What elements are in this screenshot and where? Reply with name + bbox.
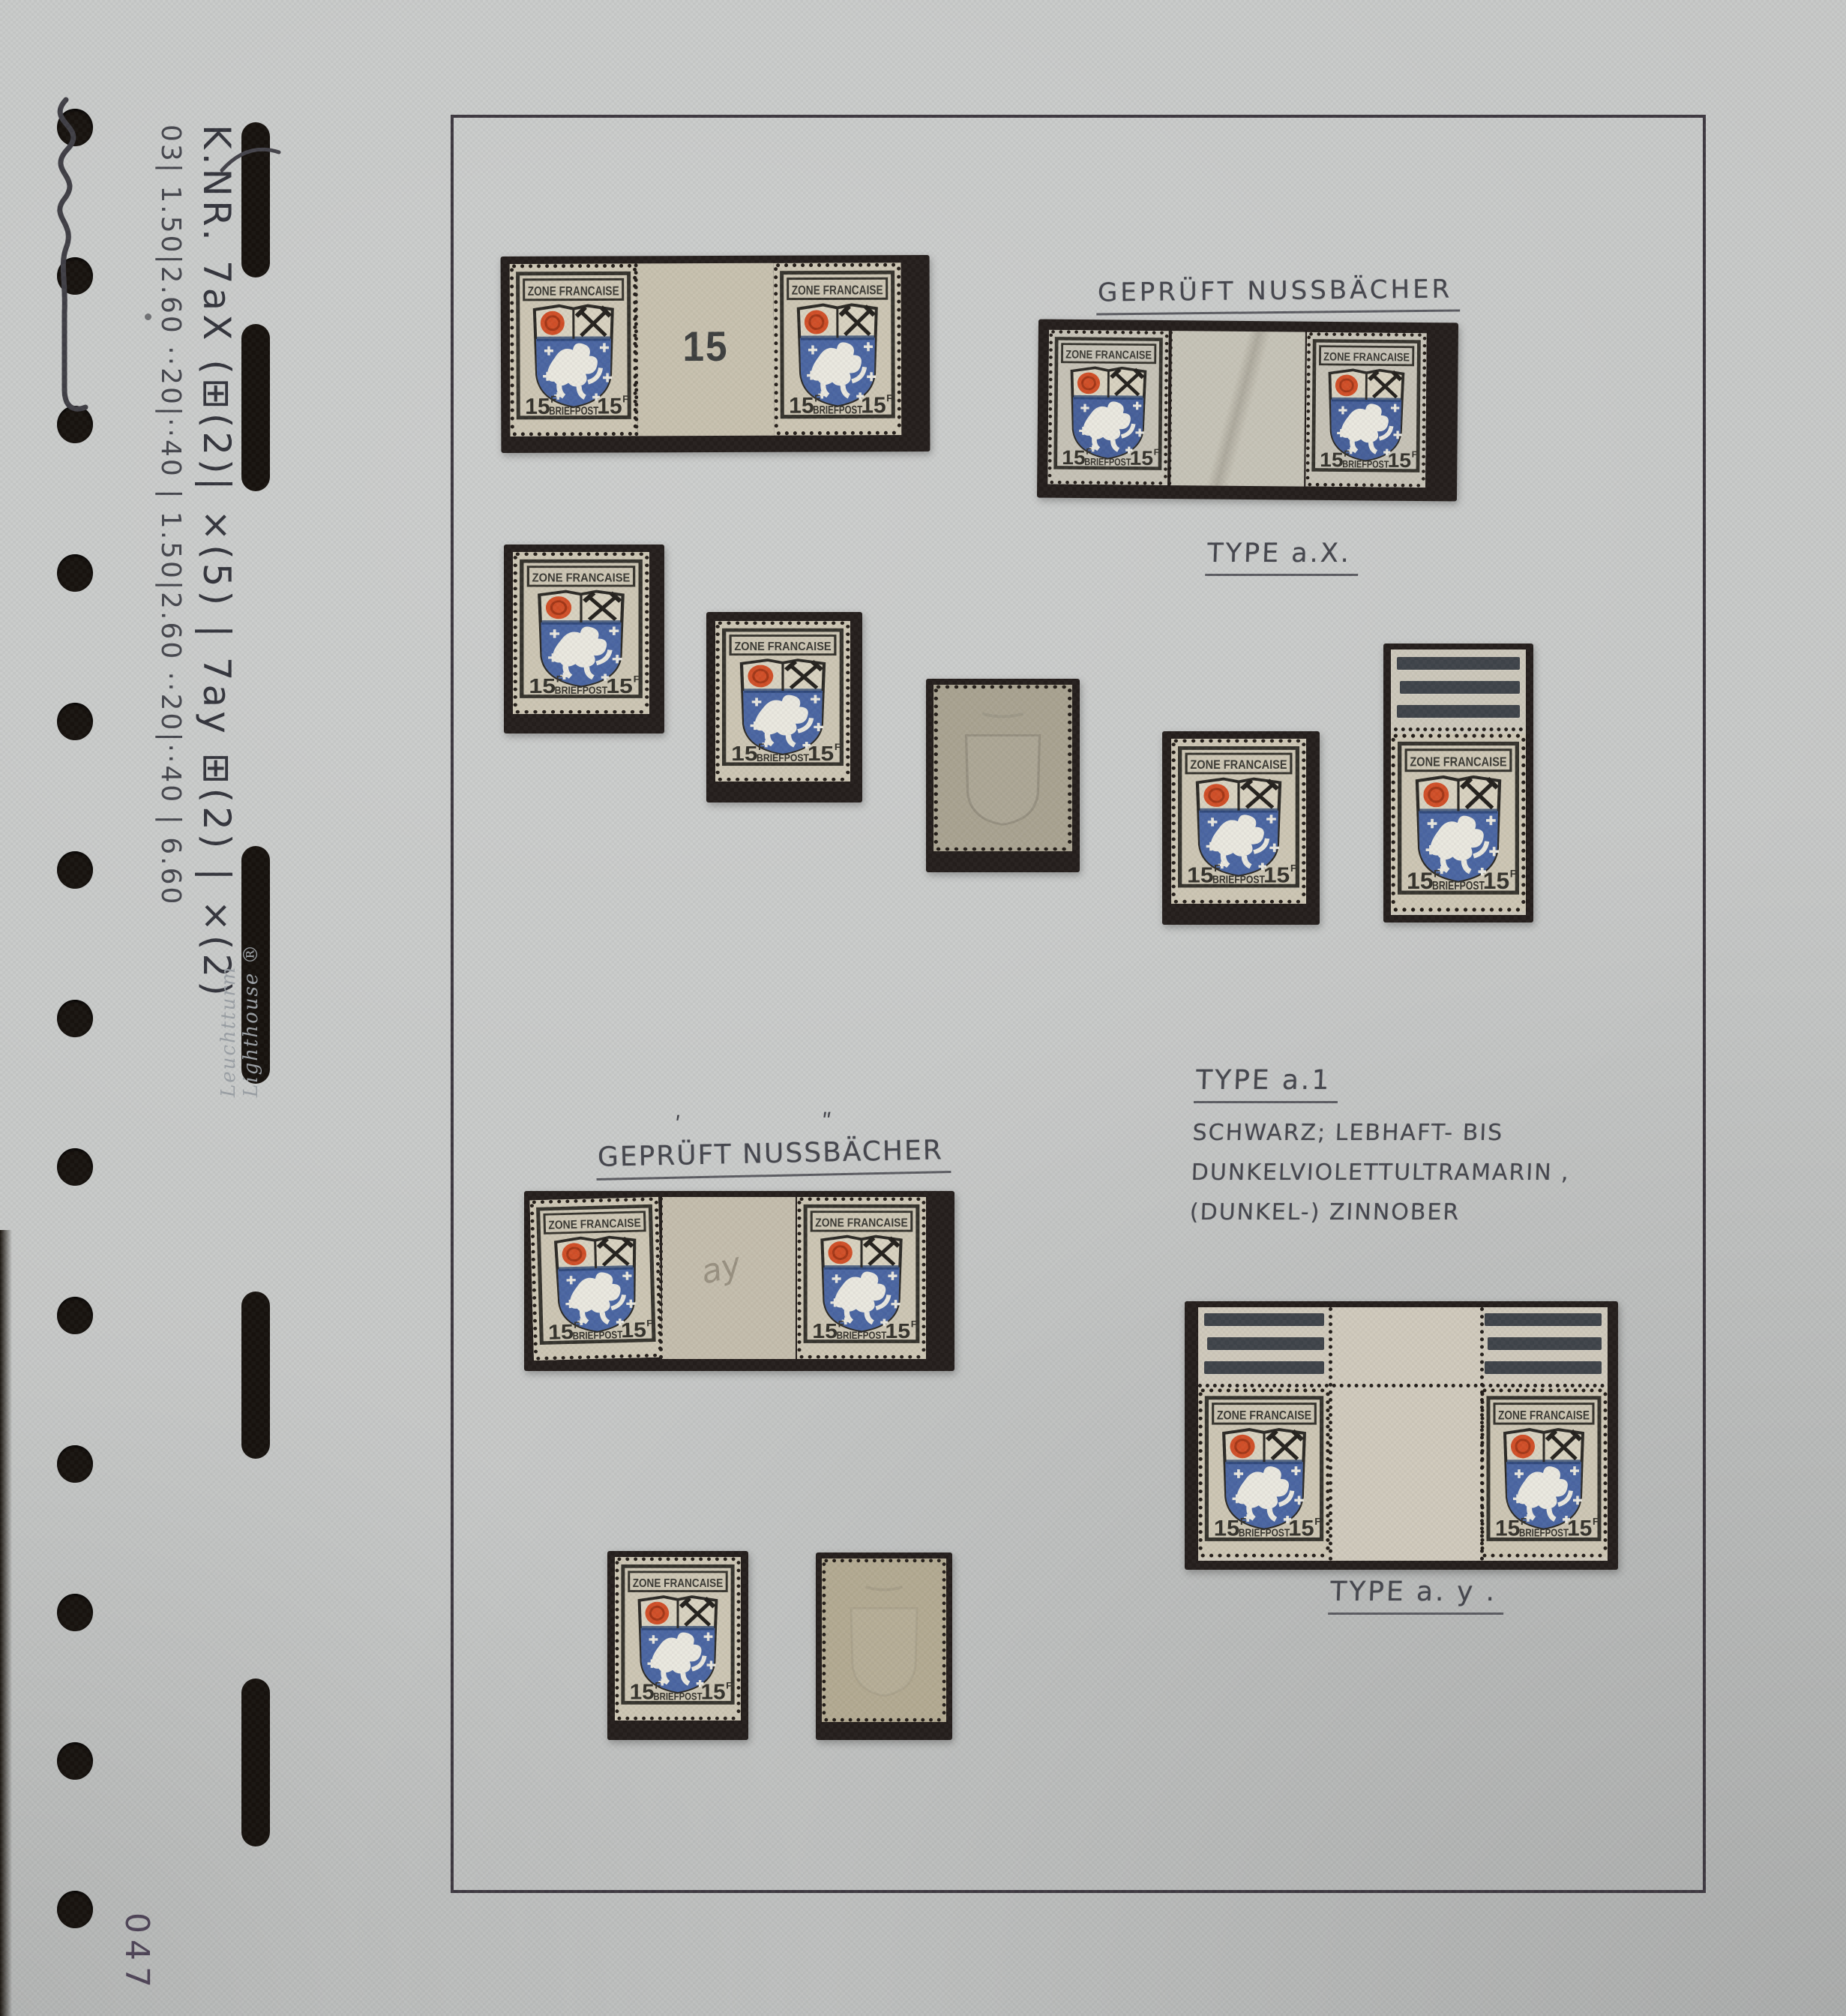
mount-cross-gutter-block — [1185, 1301, 1618, 1570]
mount-gutter-pair-15: 15 — [501, 255, 930, 453]
handwriting-type-ay: TYPE a. y . — [1328, 1576, 1505, 1615]
punch-hole — [57, 1297, 93, 1334]
handwriting-gepruft-lower: GEPRÜFT NUSSBÄCHER — [596, 1135, 951, 1180]
perforation-column — [634, 263, 639, 436]
stamp-face — [615, 1557, 741, 1720]
handwriting-type-a1-line2: DUNKELVIOLETTULTRAMARIN , — [1191, 1159, 1570, 1186]
page-number-vertical: 047 — [118, 1912, 156, 1993]
mount-gutter-pair-blank-2: ay — [524, 1191, 954, 1371]
punch-hole — [57, 1742, 93, 1780]
binder-slot-mark — [241, 1291, 270, 1459]
punch-hole — [57, 1594, 93, 1631]
stamp-face — [1171, 739, 1306, 904]
margin-bar — [1204, 1313, 1324, 1326]
stamp-face — [774, 262, 902, 436]
album-brand-vertical: Leuchtturm Lighthouse ® — [217, 842, 262, 1097]
stamp-face — [1480, 1388, 1608, 1558]
margin-bar — [1488, 1337, 1602, 1350]
stamp-face — [1047, 330, 1169, 485]
punch-hole — [57, 1445, 93, 1483]
mount-stamp-with-margin — [1383, 643, 1533, 922]
handwriting-type-ax: TYPE a.X. — [1205, 538, 1359, 576]
mount-single-stamp — [607, 1551, 748, 1740]
binder-slot-mark — [241, 324, 270, 491]
stamp-face — [510, 263, 638, 436]
margin-bar — [1485, 1313, 1602, 1326]
punch-hole — [57, 1148, 93, 1186]
gutter-tab: 15 — [637, 263, 775, 436]
margin-bar — [1204, 1361, 1324, 1374]
stamp-back — [822, 1558, 946, 1722]
perforation-column — [659, 1197, 663, 1359]
margin-bar — [1207, 1337, 1324, 1350]
margin-tab-unit — [1480, 1307, 1608, 1561]
stamp-face — [1305, 332, 1427, 487]
stamp-face — [797, 1197, 926, 1359]
mount-stamp-back — [816, 1552, 952, 1740]
handwriting-gepruft-top: GEPRÜFT NUSSBÄCHER — [1096, 274, 1461, 315]
handwriting-diacritic-mark: ʹ — [675, 1113, 681, 1139]
handwriting-type-a1-block: TYPE a.1 SCHWARZ; LEBHAFT- BIS DUNKELVIO… — [1189, 1065, 1573, 1225]
paper-crease — [1170, 331, 1305, 487]
stamp-face — [1391, 733, 1526, 912]
stamp-face — [1198, 1388, 1330, 1558]
gutter-pencil-note: ay — [697, 1245, 745, 1291]
album-page-photo: ZONE FRANCAISE 15 F BRIEFPOST 15 F — [0, 0, 1846, 2016]
mount-gutter-pair-blank — [1037, 319, 1458, 502]
margin-bar — [1485, 1361, 1602, 1374]
mount-single-stamp — [706, 612, 862, 802]
handwriting-type-a1-line3: (DUNKEL-) ZINNOBER — [1189, 1199, 1569, 1225]
gutter-tab — [1170, 331, 1305, 487]
punch-hole — [57, 554, 93, 592]
margin-tab-unit — [1198, 1307, 1330, 1561]
photo-edge-shadow — [0, 1230, 12, 2016]
stamp-face — [513, 552, 649, 714]
stamp-face — [529, 1197, 663, 1360]
punch-hole — [57, 1000, 93, 1037]
margin-bar — [1397, 657, 1520, 670]
perforation-column — [1329, 1307, 1332, 1561]
stamp-face — [715, 621, 850, 781]
pen-squiggle — [30, 71, 127, 446]
handwriting-type-a1-line1: SCHWARZ; LEBHAFT- BIS — [1192, 1120, 1572, 1146]
margin-note-line2: 03| 1.50|2.60 ··20|··40 | 1.50|2.60 ··20… — [155, 124, 186, 1066]
punch-hole — [57, 703, 93, 740]
mount-single-stamp — [1162, 731, 1320, 925]
punch-hole — [57, 851, 93, 889]
mount-stamp-back — [926, 679, 1080, 872]
perforation-column — [1480, 1307, 1484, 1561]
pen-dot — [145, 313, 151, 320]
gutter-tab: ay — [662, 1197, 796, 1359]
perforation-row — [1191, 1384, 1612, 1387]
margin-bar — [1400, 681, 1520, 694]
mount-single-stamp — [504, 544, 664, 733]
perforation-row — [1394, 727, 1523, 731]
handwriting-type-a1-title: TYPE a.1 — [1194, 1065, 1339, 1103]
punch-hole — [57, 1891, 93, 1928]
margin-bar — [1397, 705, 1520, 718]
handwriting-diacritic-mark: ʺ — [822, 1110, 832, 1136]
gutter-tab — [1330, 1307, 1480, 1561]
gutter-number-label: 15 — [643, 322, 769, 371]
binder-slot-mark — [241, 1678, 270, 1846]
sheet-margin-tab — [1391, 649, 1526, 915]
stamp-back — [933, 685, 1072, 851]
